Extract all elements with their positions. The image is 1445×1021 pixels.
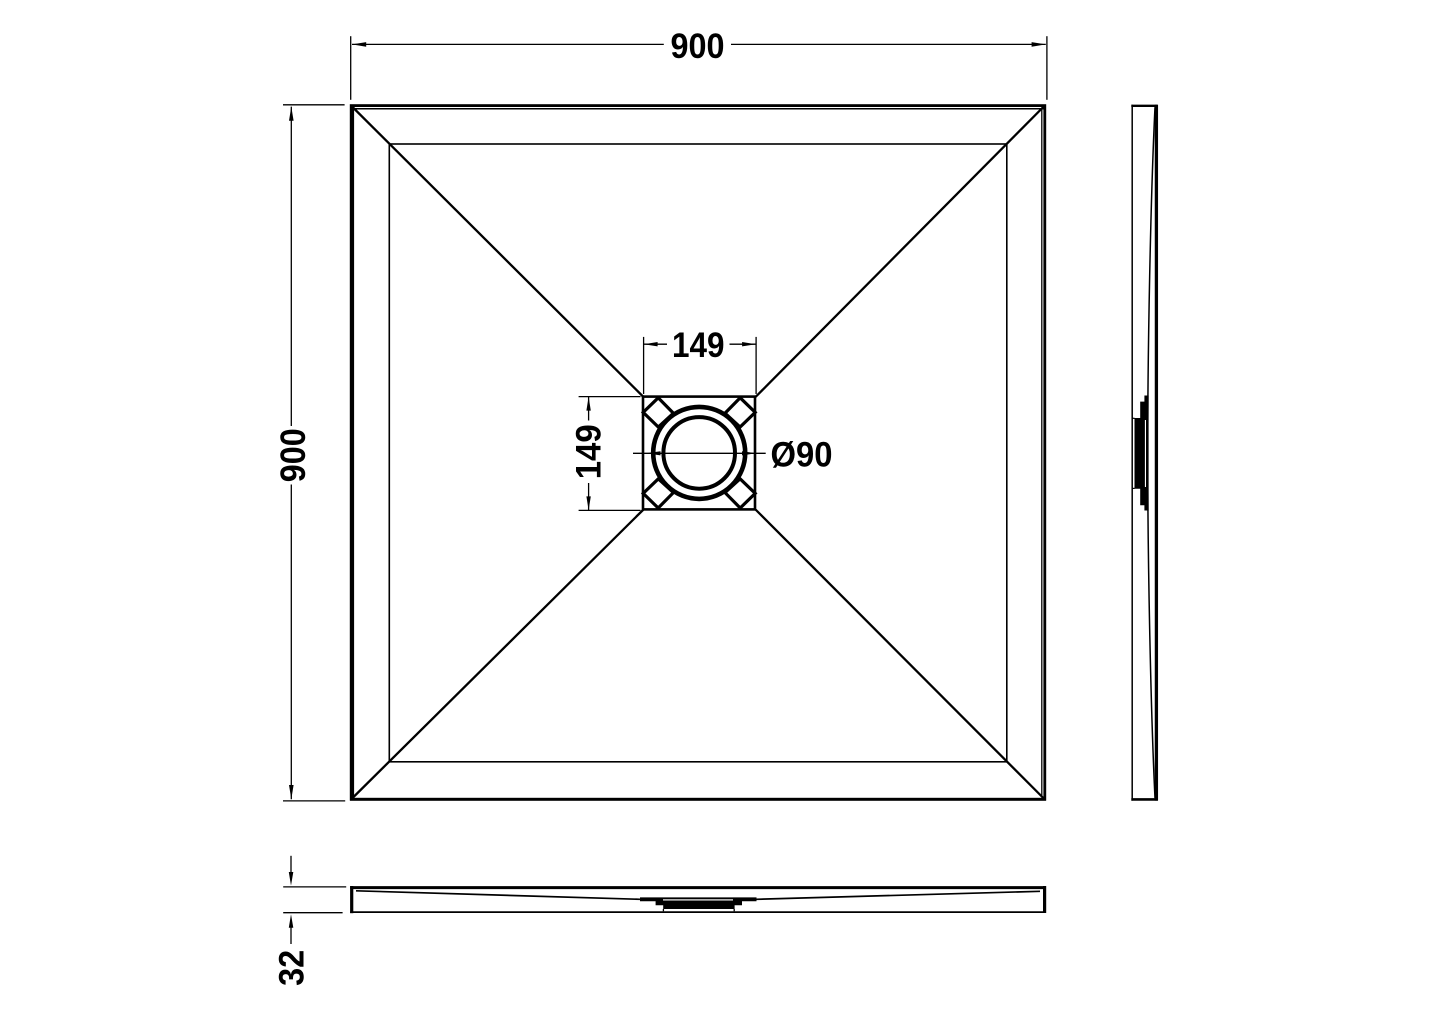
svg-text:149: 149 xyxy=(672,326,725,365)
svg-text:900: 900 xyxy=(671,27,725,66)
svg-text:32: 32 xyxy=(272,950,311,986)
svg-text:149: 149 xyxy=(570,424,609,479)
svg-text:900: 900 xyxy=(274,428,313,482)
svg-text:Ø90: Ø90 xyxy=(771,436,833,475)
